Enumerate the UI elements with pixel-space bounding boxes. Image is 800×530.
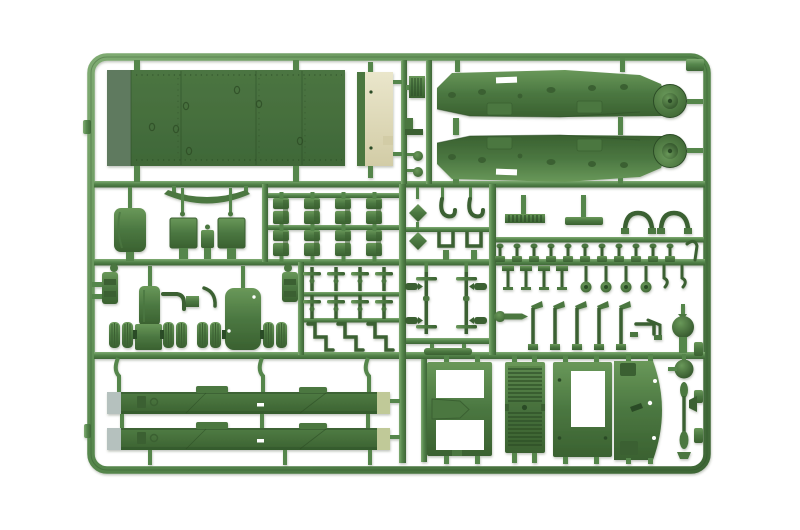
sprue-canvas	[0, 0, 800, 530]
sprue-photo	[0, 0, 800, 530]
grille-panel-part	[505, 355, 545, 463]
curved-panel-part	[614, 354, 662, 464]
section-deck-plate	[107, 60, 402, 182]
small-box-part	[186, 296, 199, 307]
strip-part	[424, 348, 472, 355]
flat-bar-part	[565, 217, 603, 225]
corner-tab	[686, 59, 704, 71]
edge-tab	[84, 424, 91, 438]
opening-panel-part	[553, 355, 612, 464]
edge-tab	[83, 120, 91, 134]
frame-panel-part	[427, 355, 492, 464]
deck-plate-part	[107, 70, 345, 166]
